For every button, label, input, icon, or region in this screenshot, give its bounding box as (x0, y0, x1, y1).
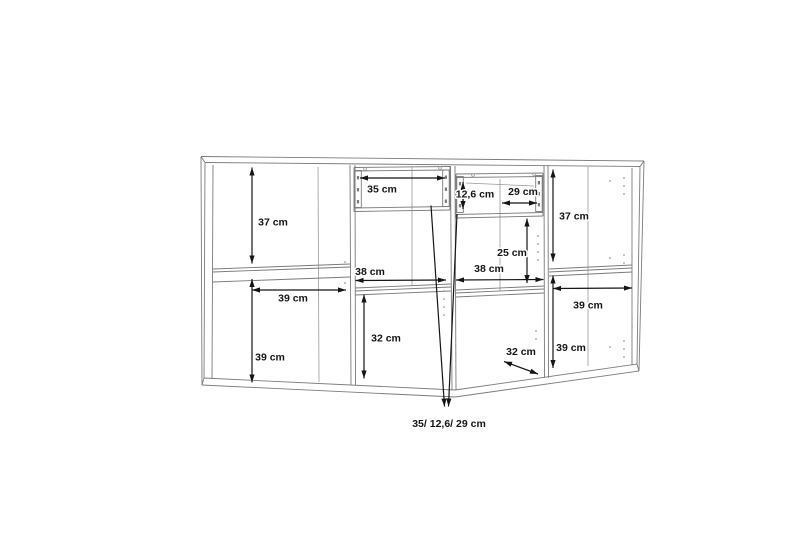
shelf-pin-hole-icon (623, 177, 625, 179)
divider3-right (548, 165, 549, 378)
drawer2-bottom2 (456, 216, 543, 218)
dimension-label-drawer2-depth: 29 cm (508, 186, 538, 198)
dimension-arrow-right-upper-height-start-arrowhead-icon (550, 170, 555, 178)
shelf-pin-hole-icon (537, 235, 539, 237)
dimension-arrow-mid-left-width (356, 280, 447, 281)
shelf-pin-hole-icon (443, 306, 445, 308)
dimension-arrow-mid-left-width-end-arrowhead-icon (438, 277, 446, 282)
drawer1-top-inner (354, 170, 450, 171)
shelf-pin-hole-icon (344, 282, 346, 284)
dimension-arrow-right-upper-height-end-arrowhead-icon (550, 254, 555, 262)
shelf-pin-hole-icon (537, 243, 539, 245)
shelf-pin-hole-icon (344, 261, 346, 263)
dimension-arrow-mid-right-width-start-arrowhead-icon (456, 277, 464, 282)
left-front-edge (204, 163, 205, 378)
shelf3-bottom (456, 293, 544, 297)
dimension-arrow-drawer2-depth-start-arrowhead-icon (502, 200, 510, 205)
dimension-label-mid-left-width: 38 cm (355, 266, 385, 278)
drawer1-bottom2 (354, 210, 450, 212)
dimension-label-mid-right-width: 38 cm (474, 263, 504, 275)
drawer-slide-tick (445, 200, 447, 203)
shelf-pin-hole-icon (623, 193, 625, 195)
drawer-slide-tick (459, 204, 461, 207)
divider3-left (544, 165, 545, 378)
technical-drawing-page: 37 cm39 cm39 cm35 cm38 cm32 cm12,6 cm29 … (0, 0, 800, 533)
drawer-slide-tick (538, 181, 540, 184)
shelf-pin-hole-icon (537, 251, 539, 253)
dimension-arrow-left-upper-height-start-arrowhead-icon (249, 168, 254, 176)
dimension-label-drawer2-height: 12,6 cm (456, 189, 495, 201)
shelf-pin-hole-icon (443, 314, 445, 316)
shelf-pin-hole-icon (537, 259, 539, 261)
dimension-label-right-lower-height: 39 cm (556, 342, 586, 354)
shelf-pin-hole-icon (443, 290, 445, 292)
dimension-arrow-left-lower-height-end-arrowhead-icon (249, 375, 254, 383)
dimension-label-mid-left-height: 32 cm (371, 333, 401, 345)
dimension-label-right-upper-height: 37 cm (559, 211, 589, 223)
dimension-label-mid-right-depth: 32 cm (506, 346, 536, 358)
drawer-dimensions-note: 35/ 12,6/ 29 cm (412, 418, 486, 430)
drawer-slide-tick (459, 182, 461, 185)
dimension-arrow-mid-right-depth-end-arrowhead-icon (530, 369, 538, 374)
top-right-end (640, 161, 644, 167)
shelf-pin-hole-icon (609, 180, 611, 182)
dimension-arrow-mid-right-width (456, 280, 544, 281)
dimension-arrow-left-upper-height-end-arrowhead-icon (249, 256, 254, 264)
dimension-arrow-drawer2-height-end-arrowhead-icon (460, 201, 465, 209)
shelf-pin-hole-icon (623, 185, 625, 187)
drawer1-bottom (354, 207, 450, 209)
shelf-pin-hole-icon (623, 356, 625, 358)
shelf4-bottom (549, 272, 632, 276)
drawer1-top (354, 167, 450, 168)
dimension-label-mid-right-opening: 25 cm (497, 247, 527, 259)
top-back-edge (201, 157, 644, 162)
shelf-pin-hole-icon (623, 262, 625, 264)
drawer-slide-tick (445, 188, 447, 191)
shelf-pin-hole-icon (535, 338, 537, 340)
dimension-arrow-right-width-start-arrowhead-icon (553, 286, 561, 291)
dimension-arrow-right-lower-height-start-arrowhead-icon (550, 276, 555, 284)
drawer-slide-tick (357, 176, 359, 179)
dimension-arrow-right-width (553, 288, 632, 289)
drawer-slide-tick (445, 176, 447, 179)
drawer2-top (456, 173, 543, 174)
furniture-dimension-diagram: 37 cm39 cm39 cm35 cm38 cm32 cm12,6 cm29 … (0, 0, 800, 533)
dimension-arrow-drawer1-width-end-arrowhead-icon (437, 175, 445, 180)
dimension-arrow-left-width-start-arrowhead-icon (252, 287, 260, 292)
left-inner-edge (212, 165, 213, 379)
dimension-label-left-lower-height: 39 cm (255, 352, 285, 364)
screw-hole-icon (364, 168, 367, 171)
drawer-slide-tick (357, 200, 359, 203)
top-left-end (201, 157, 205, 163)
bottom-front-edge (204, 364, 637, 390)
top-front-edge (205, 163, 640, 167)
shelf1-mid (213, 267, 350, 272)
bottom-under-edge (202, 371, 639, 397)
drawer2-leader-end-arrowhead-icon (446, 398, 451, 406)
shelf-pin-hole-icon (623, 348, 625, 350)
dimension-arrow-right-lower-height-end-arrowhead-icon (550, 360, 555, 368)
shelf-pin-hole-icon (609, 257, 611, 259)
dimension-label-left-width: 39 cm (278, 293, 308, 305)
dimension-arrow-left-width-end-arrowhead-icon (338, 287, 346, 292)
dimension-label-left-upper-height: 37 cm (258, 217, 288, 229)
shelf-pin-hole-icon (623, 254, 625, 256)
interior-corner-1 (318, 167, 319, 382)
shelf-pin-hole-icon (623, 340, 625, 342)
dimension-arrow-mid-left-height-end-arrowhead-icon (361, 371, 366, 379)
left-outer-edge (201, 157, 202, 385)
dimension-arrow-mid-left-height-start-arrowhead-icon (361, 295, 366, 303)
drawer-slide-tick (538, 192, 540, 195)
dimension-arrow-mid-right-opening-start-arrowhead-icon (524, 219, 529, 227)
shelf-pin-hole-icon (443, 298, 445, 300)
shelf1-bottom (213, 277, 350, 282)
drawer-slide-tick (538, 203, 540, 206)
shelf-pin-hole-icon (609, 346, 611, 348)
divider1-left (350, 165, 351, 386)
drawer-slide-tick (357, 188, 359, 191)
shelf-pin-hole-icon (535, 330, 537, 332)
dimension-arrow-mid-right-width-end-arrowhead-icon (535, 277, 543, 282)
drawer2-top-inner (456, 177, 543, 178)
dimension-label-right-width: 39 cm (573, 300, 603, 312)
shelf1-top (213, 264, 350, 269)
dimension-label-drawer1-width: 35 cm (367, 184, 397, 196)
dimension-arrow-mid-right-depth-start-arrowhead-icon (504, 362, 512, 367)
drawer1-leader (431, 206, 445, 407)
drawer2-bottom (456, 213, 543, 215)
dimension-arrow-right-width-end-arrowhead-icon (624, 285, 632, 290)
dimension-arrow-mid-left-width-start-arrowhead-icon (356, 278, 364, 283)
